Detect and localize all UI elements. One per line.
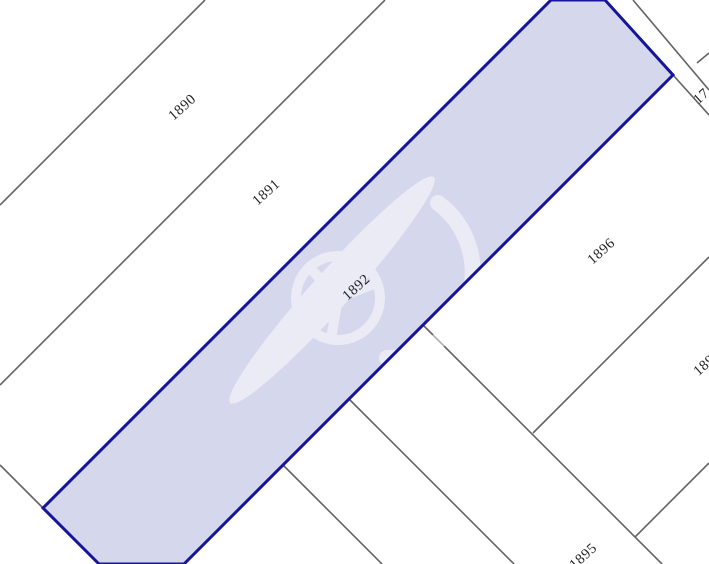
- parcel-map[interactable]: 1890 1891 1892 1896 1895 17 189: [0, 0, 709, 564]
- cadastral-map-viewport[interactable]: 1890 1891 1892 1896 1895 17 189: [0, 0, 709, 564]
